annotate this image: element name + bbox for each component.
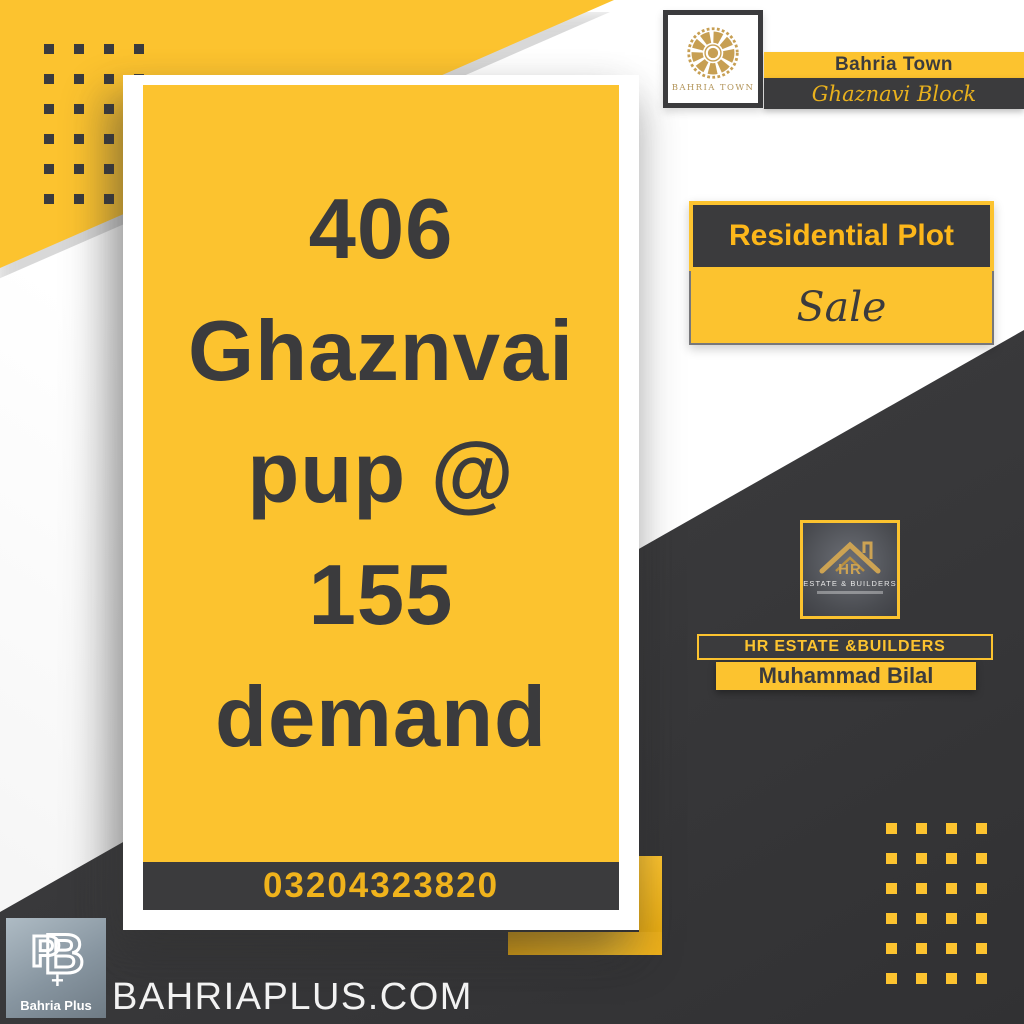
pattern-dot — [916, 883, 927, 894]
pattern-dot — [74, 104, 84, 114]
pattern-dot — [976, 913, 987, 924]
pattern-dot — [886, 913, 897, 924]
pattern-dot — [886, 973, 897, 984]
headline-line-2: Ghaznvai — [188, 291, 574, 413]
pattern-dot — [104, 74, 114, 84]
pattern-dot — [886, 823, 897, 834]
listing-category-bar: Residential Plot — [689, 201, 994, 271]
hr-logo-tagline-line — [817, 591, 883, 594]
pattern-dot — [946, 943, 957, 954]
pattern-dot — [946, 883, 957, 894]
bahria-plus-plus-sign: + — [51, 970, 64, 992]
hr-estate-logo-box: HR ESTATE & BUILDERS — [800, 520, 900, 619]
pattern-dot — [916, 913, 927, 924]
pattern-dot — [74, 194, 84, 204]
bahria-plus-monogram-icon: P B + — [6, 918, 106, 996]
property-card: 406 Ghaznvai pup @ 155 demand 0320432382… — [123, 75, 639, 930]
website-text: BAHRIAPLUS.COM — [112, 976, 473, 1019]
pattern-dot — [44, 44, 54, 54]
pattern-dot — [916, 823, 927, 834]
pattern-dot — [946, 823, 957, 834]
pattern-dot — [916, 943, 927, 954]
brand-name-text: Bahria Town — [835, 54, 953, 76]
agent-company-bar: HR ESTATE &BUILDERS — [697, 634, 993, 660]
block-name-text: Ghaznavi Block — [812, 82, 976, 106]
pattern-dot — [74, 164, 84, 174]
pattern-dot — [74, 74, 84, 84]
pattern-dot — [44, 194, 54, 204]
headline-line-3: pup @ — [247, 413, 514, 535]
pattern-dot — [104, 164, 114, 174]
property-headline: 406 Ghaznvai pup @ 155 demand — [143, 85, 619, 862]
bahria-town-logo-box: BAHRIA TOWN — [663, 10, 763, 108]
headline-line-5: demand — [215, 657, 547, 779]
pattern-dot — [886, 883, 897, 894]
pattern-dot — [44, 164, 54, 174]
yellow-corner-tab-horizontal — [508, 932, 662, 955]
listing-category-text: Residential Plot — [729, 219, 954, 253]
headline-line-4: 155 — [309, 535, 454, 657]
dots-bottom-right — [886, 823, 987, 984]
bahria-plus-logo-box: P B + Bahria Plus — [6, 918, 106, 1018]
pattern-dot — [946, 973, 957, 984]
pattern-dot — [104, 104, 114, 114]
pattern-dot — [74, 44, 84, 54]
property-card-inner: 406 Ghaznvai pup @ 155 demand 0320432382… — [143, 85, 619, 910]
phone-bar: 03204323820 — [143, 862, 619, 910]
headline-line-1: 406 — [309, 169, 454, 291]
pattern-dot — [104, 44, 114, 54]
brand-name-bar: Bahria Town — [764, 52, 1024, 78]
pattern-dot — [976, 943, 987, 954]
pattern-dot — [74, 134, 84, 144]
real-estate-poster: 406 Ghaznvai pup @ 155 demand 0320432382… — [0, 0, 1024, 1024]
pattern-dot — [946, 913, 957, 924]
listing-status-bar: Sale — [689, 271, 994, 345]
pattern-dot — [976, 973, 987, 984]
pattern-dot — [976, 853, 987, 864]
pattern-dot — [976, 823, 987, 834]
agent-name-text: Muhammad Bilal — [759, 663, 934, 689]
bahria-plus-label: Bahria Plus — [6, 998, 106, 1013]
agent-name-bar: Muhammad Bilal — [716, 662, 976, 690]
pattern-dot — [916, 973, 927, 984]
block-name-bar: Ghaznavi Block — [764, 78, 1024, 109]
hr-monogram: HR — [838, 561, 862, 578]
pattern-dot — [104, 134, 114, 144]
pattern-dot — [916, 853, 927, 864]
bahria-town-emblem-icon — [685, 25, 741, 81]
pattern-dot — [44, 74, 54, 84]
pattern-dot — [44, 134, 54, 144]
listing-box: Residential Plot Sale — [689, 201, 994, 345]
listing-status-text: Sale — [797, 283, 887, 331]
pattern-dot — [886, 853, 897, 864]
hr-logo-caption: ESTATE & BUILDERS — [803, 579, 896, 588]
pattern-dot — [976, 883, 987, 894]
agent-company-text: HR ESTATE &BUILDERS — [744, 638, 945, 656]
pattern-dot — [104, 194, 114, 204]
pattern-dot — [44, 104, 54, 114]
pattern-dot — [946, 853, 957, 864]
phone-number: 03204323820 — [263, 866, 499, 906]
pattern-dot — [886, 943, 897, 954]
bahria-town-logo-caption: BAHRIA TOWN — [672, 83, 755, 93]
pattern-dot — [134, 44, 144, 54]
